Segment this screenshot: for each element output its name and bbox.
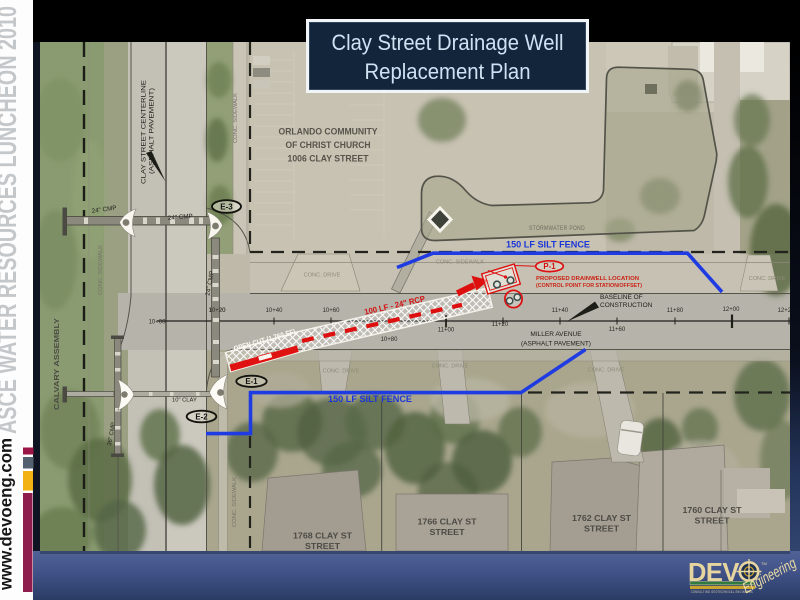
svg-text:12+00: 12+00 (723, 307, 741, 313)
svg-text:PROPOSED DRAINWELL LOCATION: PROPOSED DRAINWELL LOCATION (536, 276, 639, 282)
svg-text:P-1: P-1 (543, 262, 556, 271)
svg-text:www.devoeng.com: www.devoeng.com (0, 438, 16, 591)
svg-text:10+00: 10+00 (149, 320, 167, 326)
svg-text:CONSTRUCTION: CONSTRUCTION (600, 302, 653, 309)
svg-text:CONC. SIDEWALK: CONC. SIDEWALK (233, 93, 239, 143)
svg-text:11+00: 11+00 (438, 328, 455, 334)
svg-text:11+60: 11+60 (609, 327, 626, 333)
svg-text:CONC. SIDEWALK: CONC. SIDEWALK (436, 260, 485, 266)
svg-text:ORLANDO COMMUNITY: ORLANDO COMMUNITY (279, 126, 379, 136)
svg-text:(CONTROL POINT FOR STATION/OFF: (CONTROL POINT FOR STATION/OFFSET) (536, 283, 642, 289)
svg-text:(ASPHALT PAVEMENT): (ASPHALT PAVEMENT) (521, 341, 591, 348)
svg-text:10+40: 10+40 (266, 308, 284, 314)
svg-text:CONC. DRIVE: CONC. DRIVE (323, 369, 360, 375)
svg-text:10+80: 10+80 (381, 337, 399, 343)
svg-text:E-3: E-3 (220, 203, 233, 212)
svg-text:Replacement Plan: Replacement Plan (365, 59, 531, 84)
svg-text:1760 CLAY ST: 1760 CLAY ST (683, 505, 742, 515)
svg-text:10+20: 10+20 (209, 308, 227, 314)
svg-text:150 LF SILT FENCE: 150 LF SILT FENCE (328, 394, 412, 404)
svg-text:CONC. DRIVE: CONC. DRIVE (749, 276, 786, 282)
svg-text:STORMWATER POND: STORMWATER POND (529, 225, 585, 232)
svg-text:TM: TM (761, 561, 767, 566)
svg-text:E-2: E-2 (195, 412, 208, 421)
svg-text:150 LF SILT FENCE: 150 LF SILT FENCE (506, 240, 590, 250)
svg-text:OF CHRIST CHURCH: OF CHRIST CHURCH (286, 140, 371, 150)
svg-text:CONC. SIDEWALK: CONC. SIDEWALK (98, 245, 104, 295)
svg-text:E-1: E-1 (245, 377, 258, 386)
svg-text:STREET: STREET (695, 516, 730, 526)
svg-text:1766 CLAY ST: 1766 CLAY ST (418, 517, 477, 527)
svg-text:STREET: STREET (584, 524, 619, 534)
svg-text:11+20: 11+20 (492, 322, 509, 328)
svg-text:CONC. DRIVE: CONC. DRIVE (304, 273, 341, 279)
svg-text:STREET: STREET (430, 527, 465, 537)
svg-text:10+60: 10+60 (323, 308, 341, 314)
svg-text:CLAY STREET CENTERLINE: CLAY STREET CENTERLINE (141, 80, 148, 184)
svg-text:1762 CLAY ST: 1762 CLAY ST (572, 513, 631, 523)
svg-text:10" CLAY: 10" CLAY (172, 398, 197, 404)
svg-text:MILLER AVENUE: MILLER AVENUE (530, 331, 582, 338)
svg-text:CALVARY ASSEMBLY: CALVARY ASSEMBLY (52, 318, 61, 410)
svg-text:STREET: STREET (305, 541, 340, 551)
svg-text:1768 CLAY ST: 1768 CLAY ST (293, 531, 352, 541)
svg-text:CONC. SIDEWALK: CONC. SIDEWALK (232, 477, 238, 527)
svg-text:ASCE WATER RESOURCES LUNCHEON: ASCE WATER RESOURCES LUNCHEON 2010 (0, 6, 22, 434)
svg-text:1006 CLAY STREET: 1006 CLAY STREET (288, 153, 369, 163)
svg-text:Clay Street Drainage Well: Clay Street Drainage Well (332, 30, 564, 55)
svg-text:11+40: 11+40 (552, 308, 569, 314)
svg-text:11+80: 11+80 (667, 308, 684, 314)
svg-text:BASELINE OF: BASELINE OF (600, 294, 643, 301)
svg-text:CONC. DRIVE: CONC. DRIVE (432, 364, 469, 370)
svg-text:CONC. DRIVE: CONC. DRIVE (588, 368, 625, 374)
